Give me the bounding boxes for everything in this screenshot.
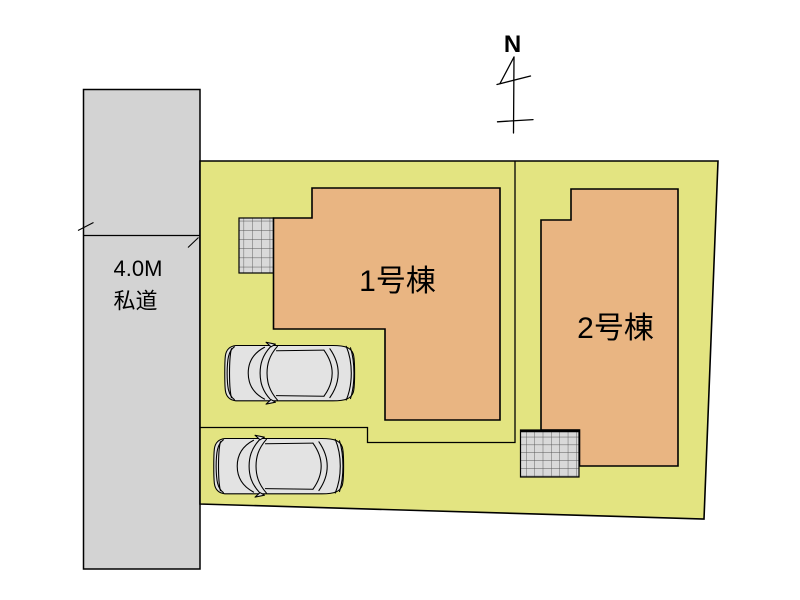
site-plan-diagram: 1号棟 2号棟 4.0M 私道 N [0, 0, 800, 600]
road-width-label: 4.0M [114, 256, 163, 281]
car-2 [214, 435, 344, 497]
hatch-area-1 [239, 218, 274, 273]
site-plan-canvas: 1号棟 2号棟 4.0M 私道 N [0, 0, 800, 600]
north-arrow-glyph [497, 57, 533, 133]
north-label: N [504, 31, 521, 58]
building-2-label: 2号棟 [577, 312, 654, 345]
building-1-label: 1号棟 [359, 265, 436, 298]
road-type-label: 私道 [114, 289, 158, 314]
private-road-area [84, 90, 201, 570]
hatch-area-2 [521, 430, 580, 477]
car-1 [225, 342, 355, 404]
north-arrow: N [497, 31, 533, 133]
